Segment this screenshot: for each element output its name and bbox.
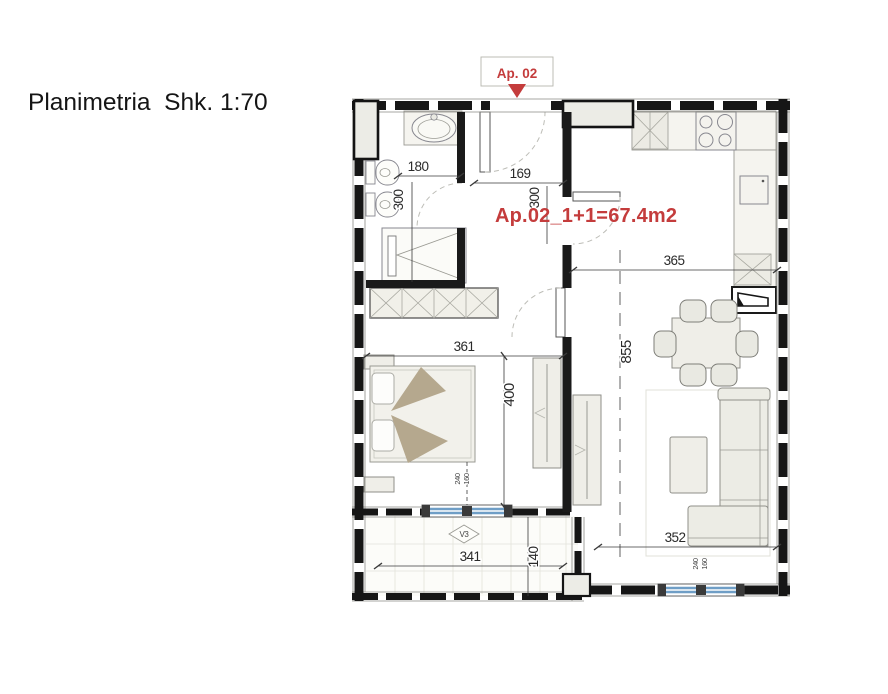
pillow bbox=[372, 373, 394, 404]
balcony-column bbox=[563, 574, 590, 596]
dim-label: 240 bbox=[453, 473, 462, 485]
bedroom-door bbox=[512, 288, 565, 337]
apartment-tag: Ap. 02 bbox=[481, 57, 553, 98]
pillow bbox=[372, 420, 394, 451]
dim-bedroom-depth: 400 bbox=[501, 352, 518, 511]
chair bbox=[711, 364, 737, 386]
dim-label: 855 bbox=[618, 340, 635, 363]
dim-label: 400 bbox=[501, 383, 518, 406]
window-tag-label: V3 bbox=[460, 530, 470, 539]
dim-label: 180 bbox=[408, 159, 429, 174]
shower-icon bbox=[382, 228, 466, 283]
entrance-door bbox=[480, 112, 545, 172]
dining-table bbox=[672, 318, 740, 368]
dim-label: 352 bbox=[665, 530, 686, 545]
chair bbox=[711, 300, 737, 322]
dim-label: 300 bbox=[391, 190, 406, 211]
shaft-column bbox=[354, 101, 378, 159]
living-window bbox=[658, 584, 744, 596]
nightstand bbox=[364, 477, 394, 492]
dim-label: 240 bbox=[691, 558, 700, 570]
dim-living-window: 240 160 bbox=[691, 558, 709, 570]
dim-label: 160 bbox=[700, 558, 709, 570]
toilet-icon bbox=[366, 160, 399, 185]
bathroom bbox=[366, 111, 466, 283]
boiler-niche-icon bbox=[732, 287, 776, 313]
dim-bedroom-width: 361 bbox=[362, 339, 567, 359]
chair bbox=[736, 331, 758, 357]
floor-plan-canvas: 180 300 169 300 365 855 bbox=[0, 0, 888, 694]
chair bbox=[654, 331, 676, 357]
dim-bedroom-window: 240 160 bbox=[453, 462, 471, 505]
chair bbox=[680, 300, 706, 322]
oven-icon bbox=[740, 176, 768, 204]
wall-column bbox=[563, 101, 633, 127]
bathroom-door bbox=[417, 183, 462, 228]
dim-bathroom-width: 180 bbox=[394, 159, 464, 179]
dim-label: 160 bbox=[462, 473, 471, 485]
dim-label: 169 bbox=[510, 166, 531, 181]
sink-tap-icon bbox=[431, 114, 437, 120]
side-cabinet bbox=[734, 254, 771, 285]
apartment-marker-icon bbox=[508, 84, 526, 98]
apartment-tag-label: Ap. 02 bbox=[497, 66, 538, 81]
dim-label: 361 bbox=[454, 339, 475, 354]
apartment-area-label: Ap.02_1+1=67.4m2 bbox=[495, 205, 677, 227]
dim-label: 341 bbox=[460, 549, 481, 564]
wardrobe-living bbox=[573, 395, 601, 505]
page-title: Planimetria Shk. 1:70 bbox=[28, 89, 268, 116]
wardrobe-bedroom bbox=[533, 358, 561, 468]
floor-plan-drawing: 180 300 169 300 365 855 bbox=[0, 0, 888, 694]
bed-icon bbox=[370, 366, 475, 463]
stove-icon bbox=[696, 112, 736, 150]
dim-label: 140 bbox=[526, 547, 541, 568]
coffee-table bbox=[670, 437, 707, 493]
dim-label: 365 bbox=[664, 253, 685, 268]
corner-cabinet bbox=[632, 112, 668, 149]
dim-living-length: 855 bbox=[618, 250, 635, 565]
bedroom-window bbox=[422, 505, 512, 517]
chair bbox=[680, 364, 706, 386]
bedroom bbox=[364, 355, 561, 492]
hall-closet bbox=[370, 288, 498, 318]
